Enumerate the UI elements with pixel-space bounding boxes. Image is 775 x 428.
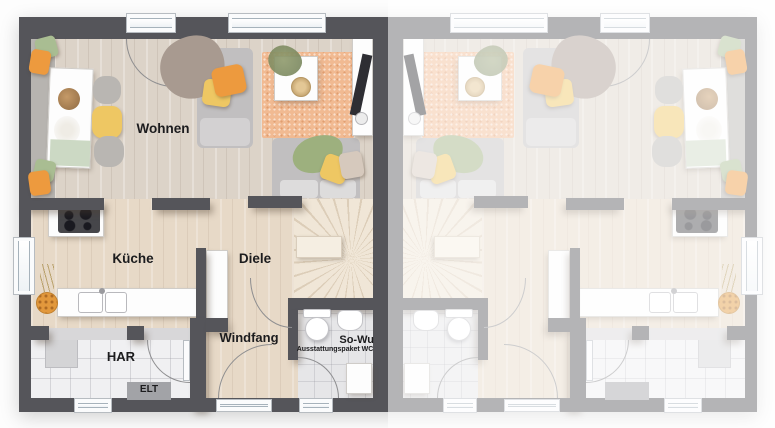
stair-landing xyxy=(296,236,342,258)
wall-wohnen-kueche xyxy=(19,198,104,210)
window-glazing xyxy=(78,403,108,408)
room-label-sowu: So-Wu xyxy=(324,334,374,346)
wall-wohnen-diele xyxy=(248,196,302,208)
window-terrace-icon xyxy=(126,13,176,33)
faucet-icon xyxy=(99,288,105,294)
window-living-icon xyxy=(228,13,326,33)
window-glazing xyxy=(232,18,322,28)
room-label-kueche: Küche xyxy=(93,251,173,266)
wc-cabinet xyxy=(346,363,372,394)
pillow-orange-top xyxy=(28,48,52,75)
har-appliance xyxy=(45,338,78,368)
wall-har-top xyxy=(31,328,196,340)
table-decor-plate xyxy=(58,88,80,110)
pillow-orange-bottom xyxy=(27,170,51,197)
wc-wall-top xyxy=(288,298,373,310)
window-kitchen-icon xyxy=(13,237,35,295)
room-label-sowu-sub: Ausstattungspaket WC xyxy=(294,346,376,353)
door-panel xyxy=(220,404,268,407)
inactive-unit-overlay xyxy=(388,0,775,428)
fruit-bowl-icon xyxy=(36,292,58,314)
speaker-icon xyxy=(355,112,368,125)
room-label-windfang: Windfang xyxy=(204,330,294,345)
wc-sink-icon xyxy=(337,310,363,331)
room-label-wohnen: Wohnen xyxy=(118,121,208,136)
dining-chair-top xyxy=(93,76,121,104)
pillow-beige-sofa2 xyxy=(338,150,365,180)
wall-har-stub-left xyxy=(30,326,49,340)
sink-basin-left xyxy=(78,292,103,313)
room-label-diele: Diele xyxy=(215,251,295,266)
dining-chair-bottom xyxy=(94,136,124,167)
window-wc-icon xyxy=(299,398,333,413)
front-door-sill xyxy=(216,399,272,412)
window-glazing xyxy=(303,403,329,408)
wall-har-stub-mid xyxy=(127,326,144,340)
sink-basin-right xyxy=(105,292,127,313)
coffee-table-tray xyxy=(291,77,311,97)
window-glazing xyxy=(18,241,30,291)
plant-sprigs xyxy=(40,264,54,292)
room-label-elt: ELT xyxy=(127,384,171,395)
wall-outer-left xyxy=(19,17,31,412)
room-label-har: HAR xyxy=(96,349,146,364)
window-har-icon xyxy=(74,398,112,413)
wall-wohnen-mid xyxy=(152,198,210,210)
floorplan-canvas: ELT Wohnen xyxy=(0,0,775,428)
cooktop-icon xyxy=(58,207,100,233)
door-leaf-har xyxy=(183,340,190,381)
table-runner xyxy=(50,139,91,166)
window-glazing xyxy=(130,18,172,28)
